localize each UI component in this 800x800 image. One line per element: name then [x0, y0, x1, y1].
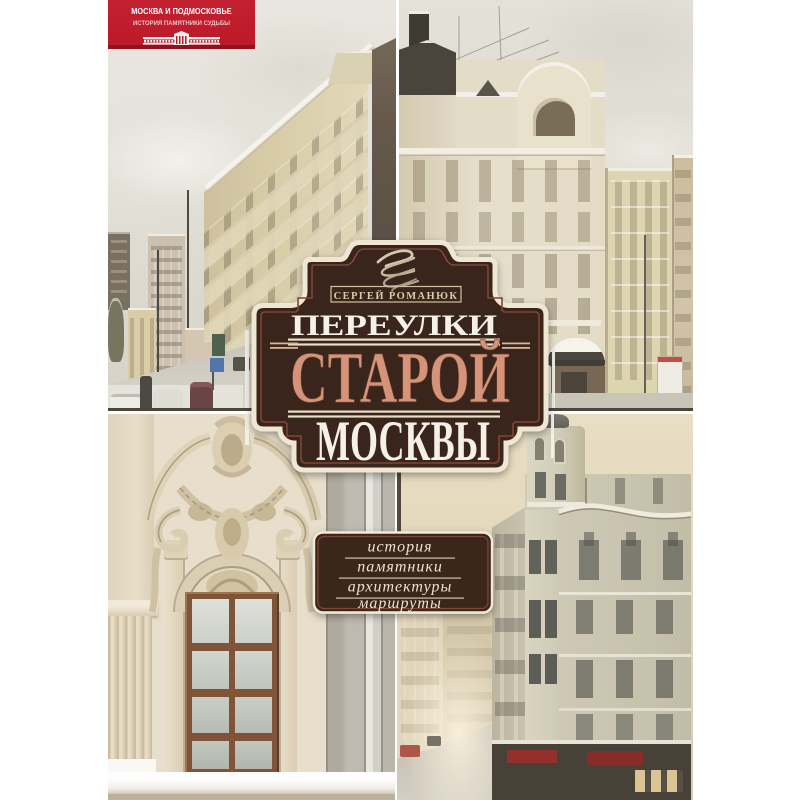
- svg-text:СЕРГЕЙ РОМАНЮК: СЕРГЕЙ РОМАНЮК: [334, 290, 459, 302]
- svg-text:памятники: памятники: [357, 559, 443, 576]
- svg-text:история: история: [367, 539, 432, 556]
- svg-text:СТАРОЙ: СТАРОЙ: [290, 337, 510, 418]
- svg-text:МОСКВЫ: МОСКВЫ: [316, 410, 490, 473]
- svg-text:маршруты: маршруты: [357, 595, 442, 612]
- svg-text:архитектуры: архитектуры: [348, 579, 453, 596]
